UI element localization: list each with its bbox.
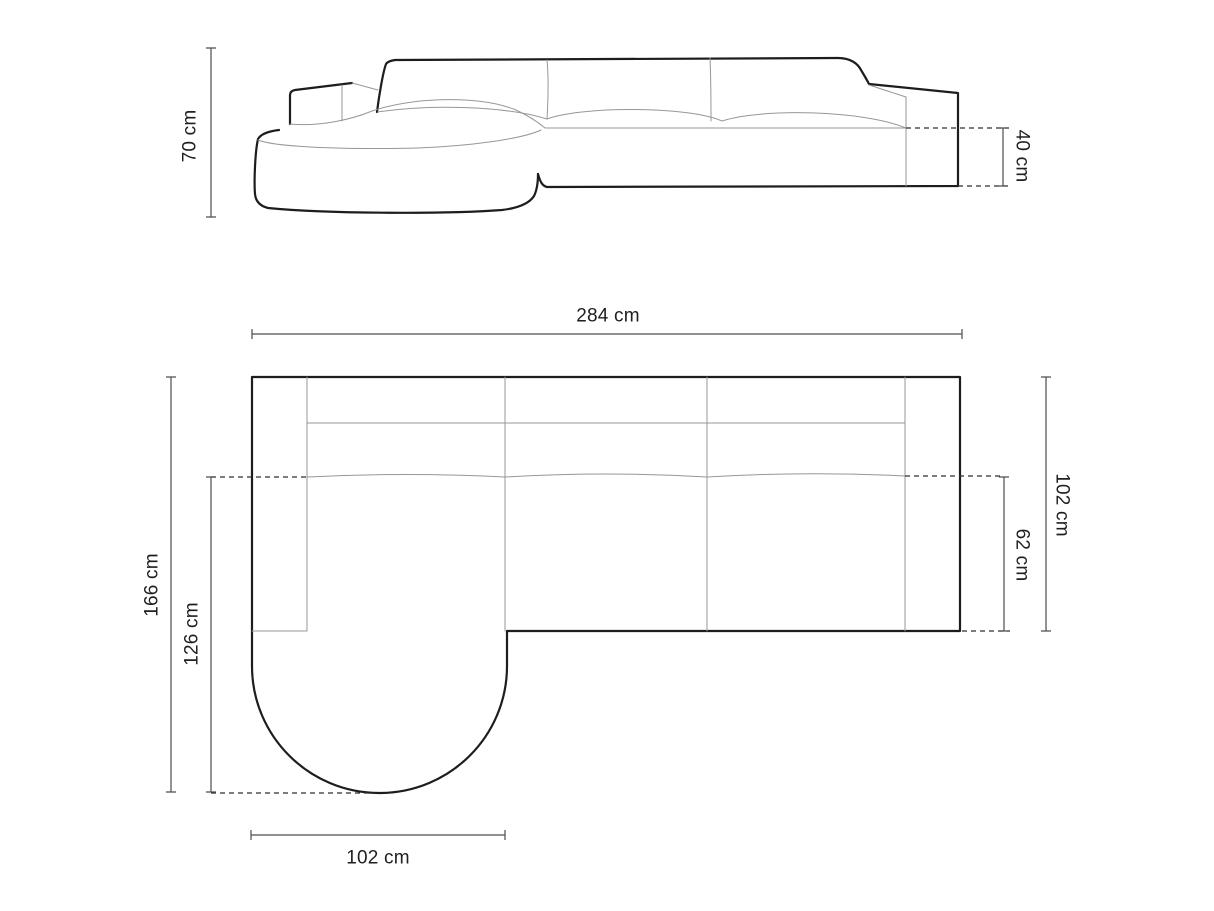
chaise-width-dimension-line	[251, 830, 505, 840]
label-chaise-protrusion-length: 126 cm	[183, 602, 202, 666]
sofa-dimension-diagram: 70 cm 40 cm 284 cm 166 cm 126 cm 102 cm …	[0, 0, 1214, 911]
top-plan-view	[166, 329, 1051, 840]
plan-outline	[252, 377, 960, 793]
width-dimension-line	[252, 329, 962, 339]
front-elevation-outline	[255, 58, 958, 213]
seat-height-dimension-line	[998, 128, 1008, 186]
label-overall-height: 70 cm	[181, 110, 200, 163]
plan-seams	[252, 377, 905, 631]
height-dimension-line	[206, 48, 216, 217]
label-chaise-total-length: 166 cm	[143, 553, 162, 617]
backrest-seam-right	[710, 58, 711, 121]
plan-cushion-front-edge	[307, 474, 905, 477]
seat-cushion-humps	[378, 107, 906, 128]
label-overall-depth-right: 102 cm	[1053, 473, 1072, 537]
front-elevation-seams	[258, 58, 906, 186]
chaise-front-outline	[255, 130, 538, 213]
label-overall-width: 284 cm	[576, 307, 640, 326]
backrest-and-right-armrest-outline	[377, 58, 958, 187]
chaise-protrusion-dimension-line	[206, 477, 216, 792]
right-armrest-inner-edge	[869, 85, 906, 186]
left-armrest-outline	[290, 83, 352, 124]
label-seat-height: 40 cm	[1013, 130, 1032, 183]
chaise-cushion-edge	[290, 100, 545, 128]
front-elevation-view	[206, 48, 1009, 217]
plan-outline-group	[252, 377, 960, 793]
label-chaise-width: 102 cm	[346, 849, 410, 868]
plan-extension-lines	[211, 476, 1010, 793]
depth-dimension-line	[1041, 377, 1051, 631]
backrest-seam-left	[547, 60, 548, 119]
chaise-length-dimension-line	[166, 377, 176, 792]
label-seat-depth-right: 62 cm	[1013, 529, 1032, 582]
front-elevation-dimension-lines	[206, 48, 1008, 217]
chaise-base-top-edge	[258, 130, 541, 149]
left-armrest-top-receding-edge	[352, 83, 378, 90]
seat-depth-dimension-line	[999, 477, 1009, 631]
